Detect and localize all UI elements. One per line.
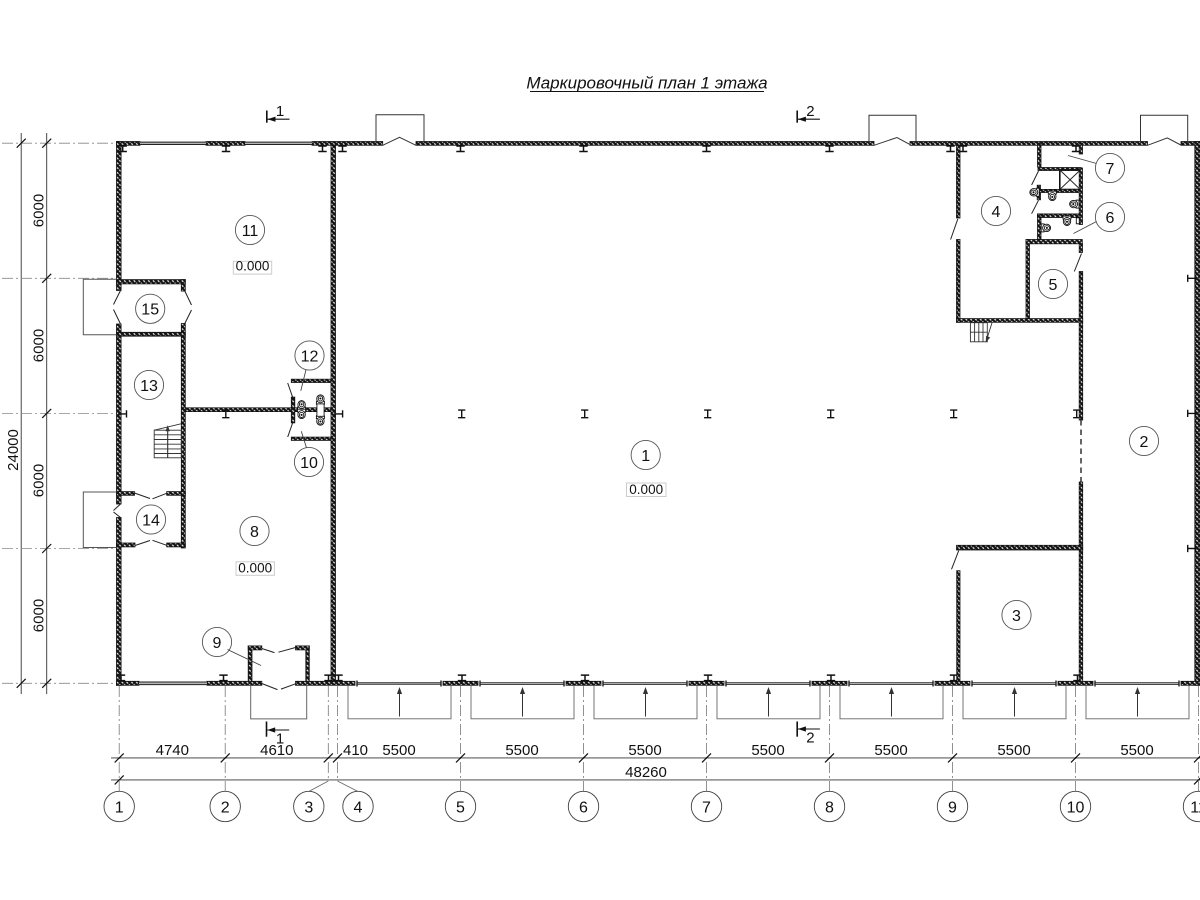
- svg-text:6000: 6000: [31, 194, 48, 227]
- svg-text:5500: 5500: [751, 742, 784, 759]
- svg-text:15: 15: [141, 302, 159, 319]
- svg-text:6: 6: [1106, 210, 1115, 227]
- svg-text:4740: 4740: [156, 742, 189, 759]
- svg-text:7: 7: [702, 799, 711, 816]
- svg-text:10: 10: [1067, 799, 1085, 816]
- svg-text:10: 10: [300, 455, 318, 472]
- svg-text:48260: 48260: [625, 764, 667, 781]
- svg-text:1: 1: [276, 731, 284, 748]
- svg-text:5500: 5500: [628, 742, 661, 759]
- svg-text:14: 14: [142, 512, 160, 529]
- svg-text:6000: 6000: [31, 329, 48, 362]
- svg-text:1: 1: [276, 103, 284, 120]
- svg-text:13: 13: [140, 378, 158, 395]
- svg-text:5: 5: [456, 799, 465, 816]
- svg-text:5500: 5500: [382, 742, 415, 759]
- svg-text:4: 4: [354, 799, 363, 816]
- svg-text:1: 1: [115, 799, 124, 816]
- svg-text:6000: 6000: [31, 464, 48, 497]
- svg-text:Маркировочный план 1 этажа: Маркировочный план 1 этажа: [526, 73, 767, 92]
- svg-text:410: 410: [343, 742, 368, 759]
- svg-text:2: 2: [806, 730, 814, 747]
- svg-text:0.000: 0.000: [629, 482, 663, 497]
- svg-text:7: 7: [1106, 161, 1115, 178]
- svg-text:0.000: 0.000: [238, 561, 272, 576]
- svg-text:6000: 6000: [31, 599, 48, 632]
- svg-text:2: 2: [1140, 434, 1149, 451]
- svg-text:2: 2: [806, 103, 814, 120]
- svg-text:9: 9: [948, 799, 957, 816]
- svg-text:11: 11: [1190, 799, 1200, 816]
- svg-text:3: 3: [304, 799, 313, 816]
- svg-text:0.000: 0.000: [236, 259, 270, 274]
- svg-text:1: 1: [641, 448, 650, 465]
- svg-text:8: 8: [825, 799, 834, 816]
- svg-text:24000: 24000: [5, 429, 22, 471]
- svg-text:5500: 5500: [505, 742, 538, 759]
- svg-text:6: 6: [579, 799, 588, 816]
- svg-text:5500: 5500: [874, 742, 907, 759]
- svg-text:2: 2: [221, 799, 230, 816]
- svg-text:5500: 5500: [1120, 742, 1153, 759]
- svg-text:5500: 5500: [997, 742, 1030, 759]
- svg-text:9: 9: [213, 635, 222, 652]
- svg-text:5: 5: [1049, 277, 1058, 294]
- svg-text:3: 3: [1012, 608, 1021, 625]
- svg-text:12: 12: [301, 348, 319, 365]
- svg-text:4: 4: [992, 204, 1001, 221]
- svg-text:8: 8: [250, 524, 259, 541]
- svg-text:11: 11: [242, 223, 259, 240]
